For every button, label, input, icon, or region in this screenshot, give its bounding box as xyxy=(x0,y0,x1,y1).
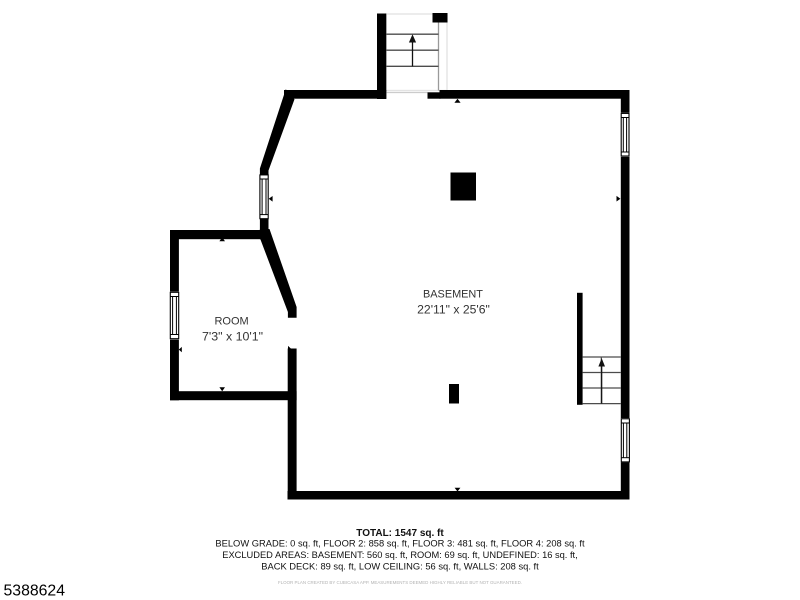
svg-text:BASEMENT: BASEMENT xyxy=(423,289,483,301)
svg-text:FLOOR PLAN CREATED BY CUBICASA: FLOOR PLAN CREATED BY CUBICASA APP. MEAS… xyxy=(278,580,522,585)
svg-text:TOTAL: 1547 sq. ft: TOTAL: 1547 sq. ft xyxy=(356,528,444,539)
svg-text:7'3" x 10'1": 7'3" x 10'1" xyxy=(202,330,263,344)
svg-text:BELOW GRADE: 0 sq. ft, FLOOR 2: BELOW GRADE: 0 sq. ft, FLOOR 2: 858 sq. … xyxy=(215,539,585,549)
svg-text:EXCLUDED AREAS: BASEMENT: 560: EXCLUDED AREAS: BASEMENT: 560 sq. ft, RO… xyxy=(222,550,577,560)
svg-text:BACK DECK: 89 sq. ft, LOW CEIL: BACK DECK: 89 sq. ft, LOW CEILING: 56 sq… xyxy=(261,562,539,572)
svg-text:ROOM: ROOM xyxy=(214,316,248,328)
svg-text:22'11" x 25'6": 22'11" x 25'6" xyxy=(417,303,490,317)
svg-text:5388624: 5388624 xyxy=(4,583,66,600)
